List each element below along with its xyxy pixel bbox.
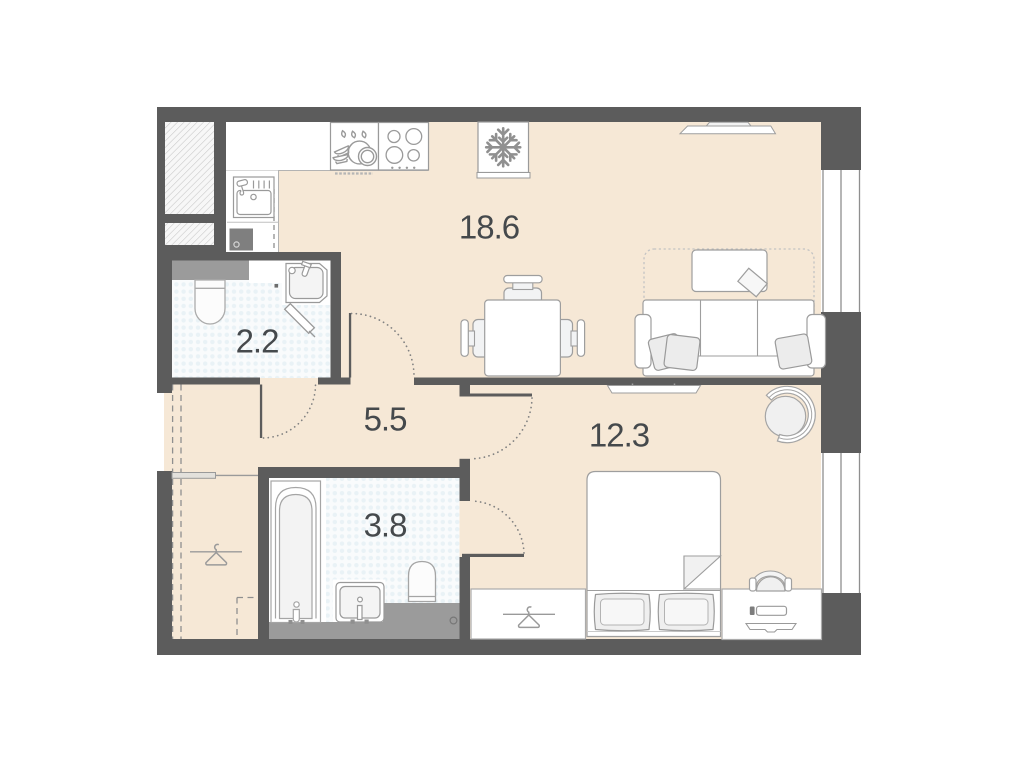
svg-text:18.6: 18.6 [459, 209, 519, 246]
svg-text:5.5: 5.5 [364, 401, 407, 438]
svg-text:12.3: 12.3 [589, 417, 649, 454]
svg-text:3.8: 3.8 [364, 507, 407, 544]
svg-text:2.2: 2.2 [236, 323, 279, 360]
